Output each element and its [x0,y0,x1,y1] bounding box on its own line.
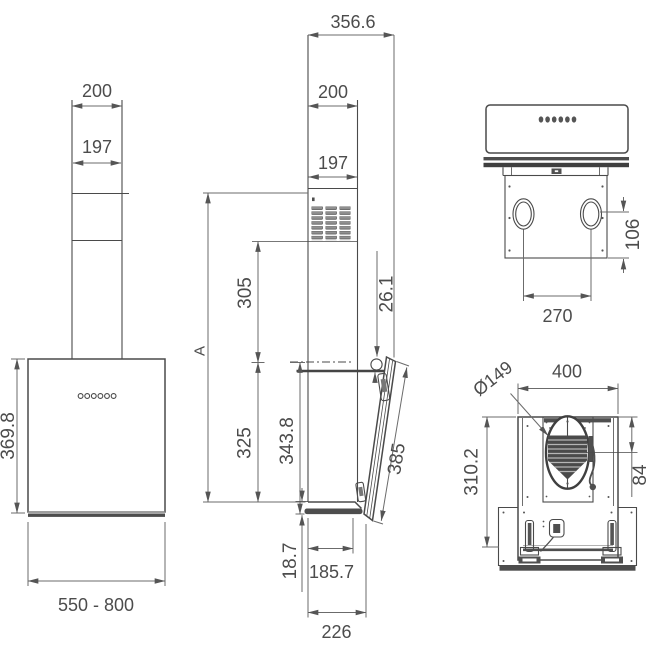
top-hood-outline [486,105,628,153]
dim-side-chimney-inner-label: 197 [318,153,348,173]
fan-outlet [546,416,596,490]
side-body-bottom [308,502,362,509]
dim-side-chimney-inner: 197 [309,153,358,177]
dim-side-glass-overhang-label: 18.7 [280,543,301,580]
dim-side-total-bottom-depth: 226 [308,524,366,642]
dim-side-body-depth: 185.7 [308,518,354,582]
dim-front-chimney-outer: 200 [72,81,122,106]
front-control-buttons [78,394,116,399]
dim-bottom-outlet-diameter-label: Ø149 [469,357,516,400]
dim-top-hole-spacing-label: 270 [542,306,572,326]
dim-side-vent-height-label: 305 [235,277,256,309]
dim-side-height-a-label: A [191,346,208,356]
dim-side-chimney-outer-label: 200 [318,82,348,102]
range-hood-technical-drawing: 200 197 369.8 550 - 800 [0,0,650,650]
dim-side-body-height: 325 [235,363,258,503]
top-back-box [505,176,607,259]
dim-side-total-bottom-depth-label: 226 [321,622,351,642]
top-mounting-rail [503,167,608,175]
dim-side-front-height: 343.8 [277,363,305,515]
dim-bottom-width-label: 400 [552,362,582,382]
front-glass-edge [28,514,165,517]
side-glass-edge [305,509,363,515]
dim-front-width-range: 550 - 800 [28,522,165,615]
front-body [28,359,165,512]
dim-top-hole-offset-label: 106 [623,219,644,251]
dim-side-total-depth-label: 356.6 [330,12,375,32]
dim-front-body-height: 369.8 [0,359,25,513]
dim-bottom-outlet-diameter: Ø149 [469,357,548,435]
dim-front-width-range-label: 550 - 800 [58,595,134,615]
dim-side-vent-height: 305 [235,242,264,363]
bottom-view: 400 Ø149 310.2 84 [462,357,650,571]
vent-grille-dot [312,198,315,202]
top-mounting-hole-right [581,199,602,229]
dim-side-chimney-outer: 200 [308,82,358,106]
dim-side-glass-overhang: 18.7 [280,488,308,592]
dim-side-panel-length-label: 385 [384,442,410,477]
dim-side-body-depth-label: 185.7 [309,562,354,582]
vent-grille [312,207,351,241]
dim-bottom-width: 400 [518,362,618,415]
cable-gland [541,520,565,552]
side-view: 356.6 200 197 305 A 325 343.8 [191,12,410,642]
dim-side-front-height-label: 343.8 [277,417,298,465]
drawing-canvas: 200 197 369.8 550 - 800 [0,0,650,650]
top-front-band [484,157,630,167]
dim-front-chimney-inner: 197 [73,137,121,163]
hinge-pivot [371,359,382,370]
dim-top-hole-spacing: 270 [524,230,592,327]
top-screw-dots [508,185,603,251]
top-mounting-hole-left [513,199,534,229]
dim-front-chimney-inner-label: 197 [82,137,112,157]
top-control-buttons [539,116,577,122]
dim-bottom-outlet-offset-label: 84 [630,464,650,486]
side-chimney [252,35,358,502]
dim-side-body-height-label: 325 [235,427,256,459]
top-view: 106 270 [484,105,645,326]
latch-left [519,521,541,564]
dim-side-panel-top-offset-label: 26.1 [377,276,398,313]
latch-right [601,521,623,564]
dim-front-chimney-outer-label: 200 [82,81,112,101]
front-view: 200 197 369.8 550 - 800 [0,81,165,615]
dim-bottom-depth-label: 310.2 [462,448,483,496]
dim-bottom-depth: 310.2 [462,417,516,547]
tilted-glass-panel [356,357,396,521]
dim-front-body-height-label: 369.8 [0,412,19,460]
